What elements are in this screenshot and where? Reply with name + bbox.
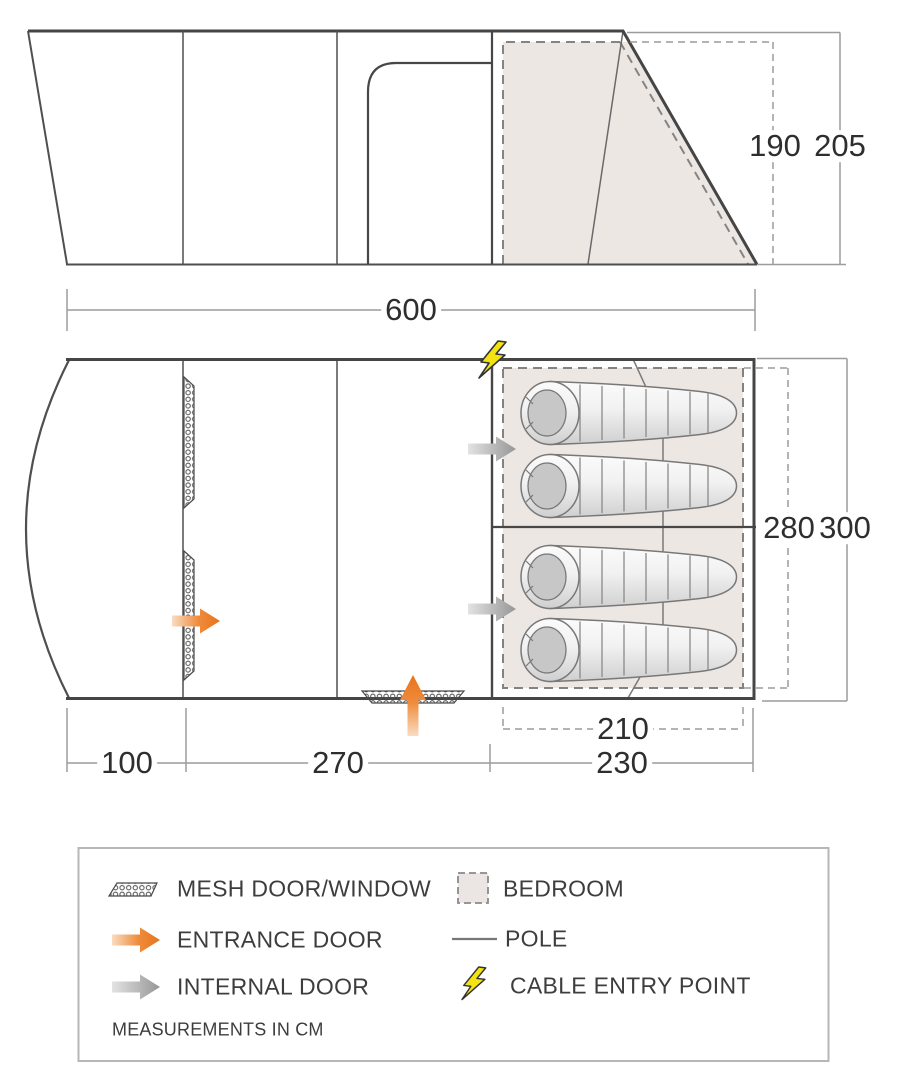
side-view-front-slant bbox=[28, 31, 67, 264]
mesh-swatch-icon bbox=[109, 883, 157, 896]
entrance-door-arrow-bottom bbox=[400, 675, 426, 736]
dimension-porch: 100 bbox=[97, 747, 157, 779]
legend-label-bedroom: BEDROOM bbox=[503, 876, 624, 903]
dimension-bedroom: 230 bbox=[592, 747, 652, 779]
side-view bbox=[28, 31, 846, 265]
bedroom-swatch-icon bbox=[458, 873, 488, 903]
dimension-bedroom-inner: 210 bbox=[593, 713, 653, 745]
floor-plan bbox=[26, 341, 756, 736]
plan-left-curve bbox=[26, 360, 69, 698]
legend-label-cable: CABLE ENTRY POINT bbox=[510, 973, 751, 1000]
dimension-total-width: 600 bbox=[381, 294, 441, 326]
legend-label-mesh: MESH DOOR/WINDOW bbox=[177, 876, 431, 903]
dimension-inner-height: 190 bbox=[745, 130, 805, 162]
dimension-living: 270 bbox=[308, 747, 368, 779]
tent-floorplan-diagram: 600 190 205 280 300 210 100 270 230 MESH… bbox=[0, 0, 900, 1086]
dimension-inner-depth: 280 bbox=[759, 512, 819, 544]
side-view-door-outline bbox=[368, 63, 491, 264]
dimension-peak-height: 205 bbox=[810, 130, 870, 162]
side-view-bedroom-area bbox=[503, 42, 757, 264]
legend-label-internal: INTERNAL DOOR bbox=[177, 974, 369, 1001]
legend-note-units: MEASUREMENTS IN CM bbox=[112, 1020, 324, 1041]
dimension-total-depth: 300 bbox=[815, 512, 875, 544]
mesh-door-window-upper bbox=[184, 377, 194, 508]
legend-label-entrance: ENTRANCE DOOR bbox=[177, 927, 383, 954]
entrance-door-arrow-side bbox=[172, 609, 220, 634]
mesh-panels bbox=[184, 377, 464, 703]
legend-label-pole: POLE bbox=[505, 926, 568, 953]
